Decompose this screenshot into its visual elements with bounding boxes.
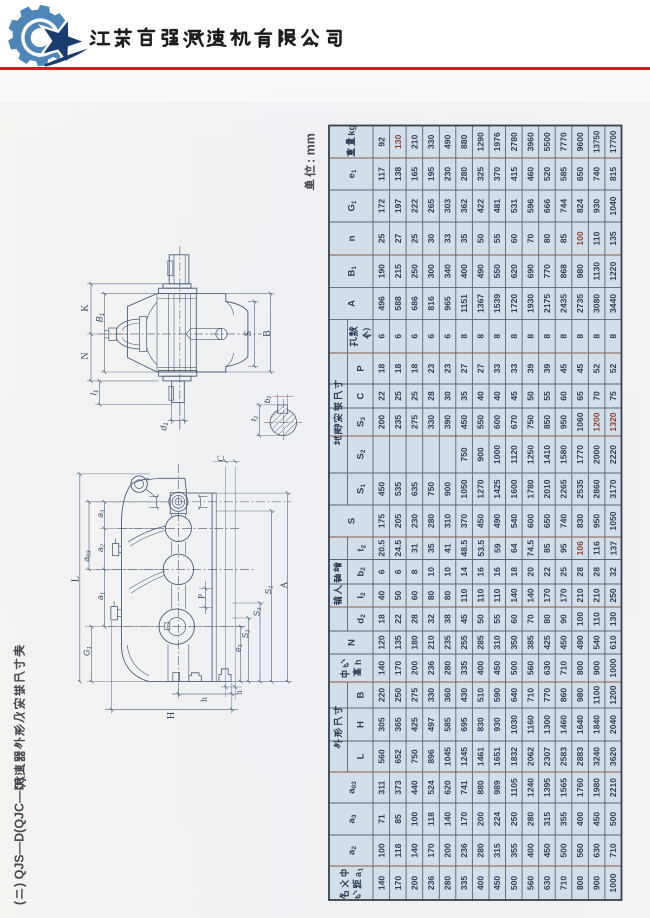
svg-text:8: 8: [476, 334, 486, 339]
svg-text:52: 52: [592, 364, 602, 374]
svg-text:8: 8: [525, 334, 535, 339]
svg-text:80: 80: [426, 591, 436, 601]
svg-text:B: B: [262, 330, 273, 337]
svg-text:18: 18: [393, 364, 403, 374]
svg-text:315: 315: [542, 812, 552, 827]
svg-text:750: 750: [409, 749, 419, 764]
svg-text:28: 28: [592, 567, 602, 577]
svg-text:140: 140: [525, 588, 535, 603]
svg-text:740: 740: [559, 514, 569, 529]
svg-text:1770: 1770: [575, 445, 585, 464]
svg-text:2735: 2735: [575, 294, 585, 313]
svg-text:430: 430: [459, 688, 469, 703]
svg-text:315: 315: [492, 843, 502, 858]
svg-text:816: 816: [426, 296, 436, 311]
svg-text:930: 930: [592, 199, 602, 214]
svg-text:2583: 2583: [559, 747, 569, 766]
svg-text:3080: 3080: [592, 294, 602, 313]
svg-text:20: 20: [525, 567, 535, 577]
svg-text:500: 500: [559, 843, 569, 858]
svg-text:118: 118: [393, 843, 403, 857]
svg-text:635: 635: [409, 482, 419, 497]
svg-text:950: 950: [592, 514, 602, 529]
svg-text:200: 200: [409, 876, 419, 891]
svg-text:355: 355: [559, 812, 569, 827]
svg-text:39: 39: [525, 364, 535, 374]
svg-text:275: 275: [409, 415, 419, 430]
svg-text:630: 630: [592, 843, 602, 858]
svg-text:100: 100: [376, 843, 386, 858]
svg-text:520: 520: [542, 167, 552, 182]
svg-text:362: 362: [459, 199, 469, 214]
svg-text:236: 236: [459, 843, 469, 858]
svg-text:235: 235: [393, 415, 403, 430]
svg-text:28: 28: [575, 567, 585, 577]
svg-text:1250: 1250: [525, 445, 535, 464]
svg-text:1050: 1050: [459, 479, 469, 498]
svg-text:1000: 1000: [608, 873, 618, 892]
svg-text:h: h: [200, 697, 210, 702]
svg-text:C: C: [217, 455, 227, 461]
svg-text:205: 205: [393, 514, 403, 529]
svg-text:n: n: [346, 235, 357, 241]
svg-text:585: 585: [559, 167, 569, 182]
svg-text:22: 22: [542, 567, 552, 577]
svg-text:40: 40: [476, 391, 486, 401]
svg-text:24.5: 24.5: [393, 540, 403, 557]
svg-text:1130: 1130: [592, 262, 602, 281]
svg-text:1651: 1651: [492, 747, 502, 766]
svg-text:130: 130: [608, 612, 618, 627]
svg-text:230: 230: [409, 514, 419, 529]
svg-text:741: 741: [459, 780, 469, 795]
svg-text:750: 750: [525, 415, 535, 430]
svg-text:40: 40: [376, 591, 386, 601]
svg-text:630: 630: [542, 661, 552, 676]
svg-text:1976: 1976: [492, 132, 502, 151]
svg-text:27: 27: [476, 364, 486, 374]
svg-text:210: 210: [409, 134, 419, 149]
svg-text:170: 170: [426, 843, 436, 858]
svg-text:2535: 2535: [575, 479, 585, 498]
svg-text:52: 52: [608, 364, 618, 374]
svg-text:80: 80: [542, 234, 552, 244]
svg-text:1930: 1930: [525, 294, 535, 313]
svg-text:3960: 3960: [525, 132, 535, 151]
svg-text:100: 100: [409, 812, 419, 827]
svg-text:80: 80: [443, 591, 453, 601]
svg-text:236: 236: [426, 661, 436, 676]
svg-text:8: 8: [509, 334, 519, 339]
svg-text:170: 170: [393, 661, 403, 676]
svg-text:5500: 5500: [542, 132, 552, 151]
svg-text:50: 50: [476, 614, 486, 624]
svg-text:950: 950: [559, 415, 569, 430]
svg-text:140: 140: [376, 876, 386, 891]
svg-text:620: 620: [509, 264, 519, 279]
svg-text:7770: 7770: [559, 132, 569, 151]
svg-text:1060: 1060: [575, 412, 585, 431]
svg-text:900: 900: [476, 447, 486, 462]
svg-text:222: 222: [409, 199, 419, 214]
svg-text:18: 18: [376, 364, 386, 374]
svg-text:23: 23: [443, 364, 453, 374]
svg-text:310: 310: [492, 635, 502, 650]
svg-text:: mm: : mm: [304, 133, 318, 163]
svg-text:30: 30: [443, 391, 453, 401]
svg-text:390: 390: [443, 415, 453, 430]
svg-text:1105: 1105: [509, 778, 519, 797]
svg-text:868: 868: [559, 264, 569, 279]
svg-text:650: 650: [542, 514, 552, 529]
svg-text:215: 215: [393, 264, 403, 279]
svg-text:770: 770: [542, 264, 552, 279]
svg-text:280: 280: [525, 812, 535, 827]
svg-text:53.5: 53.5: [476, 540, 486, 557]
svg-text:137: 137: [608, 541, 618, 556]
svg-text:70: 70: [525, 234, 535, 244]
svg-text:59: 59: [492, 543, 502, 553]
svg-text:370: 370: [492, 167, 502, 182]
svg-text:1000: 1000: [608, 658, 618, 677]
svg-text:1000: 1000: [492, 445, 502, 464]
svg-text:850: 850: [542, 415, 552, 430]
svg-text:370: 370: [459, 514, 469, 529]
svg-text:1030: 1030: [509, 715, 519, 734]
svg-text:590: 590: [492, 688, 502, 703]
svg-text:10: 10: [443, 567, 453, 577]
svg-text:652: 652: [393, 749, 403, 764]
svg-text:355: 355: [509, 843, 519, 858]
svg-text:250: 250: [409, 264, 419, 279]
svg-text:14: 14: [459, 567, 469, 577]
svg-text:135: 135: [393, 635, 403, 650]
svg-text:71: 71: [376, 814, 386, 824]
svg-text:6: 6: [443, 334, 453, 339]
svg-text:45: 45: [559, 364, 569, 374]
svg-text:70: 70: [592, 391, 602, 401]
svg-text:85: 85: [542, 543, 552, 553]
svg-text:6: 6: [426, 334, 436, 339]
svg-text:8: 8: [542, 334, 552, 339]
svg-text:60: 60: [509, 614, 519, 624]
svg-text:255: 255: [459, 635, 469, 650]
svg-text:N: N: [346, 639, 357, 646]
svg-text:303: 303: [443, 199, 453, 214]
svg-text:210: 210: [592, 588, 602, 603]
svg-text:560: 560: [525, 876, 535, 891]
svg-text:H: H: [356, 721, 367, 728]
svg-text:45: 45: [459, 614, 469, 624]
svg-text:385: 385: [525, 635, 535, 650]
svg-text:415: 415: [509, 167, 519, 182]
svg-text:2040: 2040: [608, 715, 618, 734]
svg-text:695: 695: [459, 717, 469, 732]
svg-text:490: 490: [575, 635, 585, 650]
svg-text:A: A: [346, 300, 357, 307]
svg-text:610: 610: [608, 635, 618, 650]
svg-text:1832: 1832: [509, 747, 519, 766]
svg-text:33: 33: [509, 364, 519, 374]
svg-text:45: 45: [575, 364, 585, 374]
svg-text:118: 118: [426, 812, 436, 826]
svg-text:350: 350: [509, 635, 519, 650]
svg-text:170: 170: [542, 588, 552, 603]
svg-text:510: 510: [476, 688, 486, 703]
svg-text:S: S: [243, 331, 254, 337]
svg-text:200: 200: [376, 415, 386, 430]
svg-text:305: 305: [376, 717, 386, 732]
svg-text:1040: 1040: [608, 196, 618, 215]
svg-text:670: 670: [509, 415, 519, 430]
svg-text:440: 440: [409, 780, 419, 795]
svg-text:236: 236: [426, 876, 436, 891]
svg-text:620: 620: [443, 780, 453, 795]
svg-text:1270: 1270: [476, 479, 486, 498]
svg-text:20.5: 20.5: [376, 540, 386, 557]
svg-text:60: 60: [409, 591, 419, 601]
svg-text:116: 116: [592, 541, 602, 555]
svg-text:1410: 1410: [542, 445, 552, 464]
svg-text:P: P: [356, 365, 367, 372]
svg-text:1160: 1160: [525, 715, 535, 734]
svg-text:1425: 1425: [492, 479, 502, 498]
svg-text:172: 172: [376, 199, 386, 214]
svg-text:6: 6: [393, 569, 403, 574]
svg-text:8: 8: [459, 334, 469, 339]
svg-text:1200: 1200: [608, 685, 618, 704]
svg-text:85: 85: [559, 234, 569, 244]
svg-text:3170: 3170: [608, 479, 618, 498]
svg-text:2220: 2220: [608, 445, 618, 464]
svg-text:880: 880: [476, 780, 486, 795]
svg-text:740: 740: [592, 167, 602, 182]
svg-text:1290: 1290: [476, 132, 486, 151]
svg-text:965: 965: [443, 296, 453, 311]
svg-text:B: B: [356, 691, 367, 698]
svg-text:64: 64: [509, 543, 519, 553]
svg-text:197: 197: [393, 199, 403, 214]
svg-text:310: 310: [443, 514, 453, 529]
svg-text:8: 8: [559, 334, 569, 339]
svg-text:490: 490: [476, 264, 486, 279]
svg-text:100: 100: [575, 231, 585, 246]
svg-text:100: 100: [575, 612, 585, 627]
svg-text:1760: 1760: [575, 778, 585, 797]
svg-text:kg: kg: [346, 125, 357, 136]
svg-text:710: 710: [608, 843, 618, 858]
svg-text:824: 824: [575, 199, 585, 214]
svg-text:1780: 1780: [525, 479, 535, 498]
svg-text:170: 170: [459, 812, 469, 827]
svg-text:230: 230: [443, 167, 453, 182]
svg-text:45: 45: [509, 391, 519, 401]
svg-text:35: 35: [459, 391, 469, 401]
svg-text:55: 55: [492, 614, 502, 624]
svg-text:18: 18: [509, 567, 519, 577]
svg-text:750: 750: [426, 482, 436, 497]
svg-text:60: 60: [559, 391, 569, 401]
svg-text:200: 200: [476, 812, 486, 827]
svg-text:1539: 1539: [492, 294, 502, 313]
svg-text:2265: 2265: [559, 479, 569, 498]
svg-text:1300: 1300: [542, 715, 552, 734]
svg-text:280: 280: [443, 876, 453, 891]
svg-text:3440: 3440: [608, 294, 618, 313]
svg-text:2000: 2000: [592, 445, 602, 464]
svg-text:1640: 1640: [575, 715, 585, 734]
svg-text:560: 560: [376, 749, 386, 764]
svg-text:28: 28: [409, 614, 419, 624]
svg-text:710: 710: [559, 661, 569, 676]
svg-text:200: 200: [409, 661, 419, 676]
svg-text:28: 28: [426, 391, 436, 401]
svg-text:70: 70: [525, 614, 535, 624]
svg-text:N: N: [80, 352, 91, 359]
svg-text:8: 8: [592, 334, 602, 339]
svg-text:30: 30: [426, 234, 436, 244]
svg-text:170: 170: [559, 588, 569, 603]
svg-text:1460: 1460: [559, 715, 569, 734]
svg-text:A: A: [280, 581, 290, 588]
svg-text:50: 50: [525, 391, 535, 401]
svg-text:138: 138: [393, 167, 403, 182]
svg-text:666: 666: [542, 199, 552, 214]
svg-text:80: 80: [542, 614, 552, 624]
svg-text:531: 531: [509, 199, 519, 214]
svg-text:550: 550: [476, 415, 486, 430]
svg-text:140: 140: [509, 588, 519, 603]
svg-text:540: 540: [592, 635, 602, 650]
svg-text:524: 524: [426, 780, 436, 795]
svg-text:1151: 1151: [459, 294, 469, 313]
svg-text:18: 18: [409, 364, 419, 374]
svg-text:989: 989: [492, 780, 502, 795]
svg-text:110: 110: [459, 588, 469, 602]
svg-text:900: 900: [592, 661, 602, 676]
svg-text:710: 710: [559, 876, 569, 891]
svg-text:285: 285: [476, 635, 486, 650]
svg-text:75: 75: [608, 391, 618, 401]
svg-text:373: 373: [393, 780, 403, 795]
svg-text:16: 16: [476, 567, 486, 577]
svg-text:250: 250: [608, 588, 618, 603]
svg-text:135: 135: [608, 231, 618, 246]
svg-text:117: 117: [376, 167, 386, 181]
svg-text:33: 33: [492, 364, 502, 374]
svg-text:140: 140: [443, 812, 453, 827]
svg-text:360: 360: [443, 688, 453, 703]
svg-text:275: 275: [409, 688, 419, 703]
svg-text:2062: 2062: [525, 747, 535, 766]
svg-text:55: 55: [492, 234, 502, 244]
svg-text:980: 980: [575, 688, 585, 703]
svg-text:106: 106: [575, 541, 585, 556]
svg-text:450: 450: [476, 514, 486, 529]
svg-text:1200: 1200: [592, 412, 602, 431]
svg-text:311: 311: [376, 780, 386, 794]
svg-text:195: 195: [426, 167, 436, 182]
svg-text:22: 22: [393, 614, 403, 624]
svg-text:425: 425: [409, 717, 419, 732]
svg-text:1240: 1240: [525, 778, 535, 797]
svg-text:1: 1: [358, 868, 365, 872]
svg-text:2860: 2860: [592, 479, 602, 498]
svg-text:280: 280: [459, 167, 469, 182]
svg-text:210: 210: [575, 588, 585, 603]
svg-text:235: 235: [443, 635, 453, 650]
svg-text:3620: 3620: [608, 747, 618, 766]
svg-text:686: 686: [409, 296, 419, 311]
svg-text:588: 588: [393, 296, 403, 311]
svg-text:1580: 1580: [559, 445, 569, 464]
svg-text:770: 770: [542, 688, 552, 703]
svg-text:1395: 1395: [542, 778, 552, 797]
svg-text:38: 38: [443, 614, 453, 624]
svg-text:1220: 1220: [608, 261, 618, 280]
svg-text:2307: 2307: [542, 747, 552, 766]
svg-text:1100: 1100: [592, 685, 602, 704]
svg-text:630: 630: [542, 876, 552, 891]
svg-text:120: 120: [376, 635, 386, 650]
svg-text:9600: 9600: [575, 132, 585, 151]
svg-text:48.5: 48.5: [459, 540, 469, 557]
svg-text:50: 50: [476, 234, 486, 244]
svg-text:h: h: [353, 660, 363, 666]
svg-text:90: 90: [559, 614, 569, 624]
svg-text:2175: 2175: [542, 294, 552, 313]
svg-text:18: 18: [376, 614, 386, 624]
svg-text:330: 330: [426, 688, 436, 703]
svg-text:1720: 1720: [509, 294, 519, 313]
svg-text:800: 800: [575, 661, 585, 676]
svg-text:540: 540: [509, 514, 519, 529]
svg-text:1320: 1320: [608, 412, 618, 431]
svg-text:690: 690: [525, 264, 535, 279]
svg-text:490: 490: [443, 134, 453, 149]
svg-text:65: 65: [575, 391, 585, 401]
svg-text:400: 400: [476, 661, 486, 676]
svg-text:220: 220: [376, 688, 386, 703]
svg-text:550: 550: [492, 264, 502, 279]
svg-text:365: 365: [393, 717, 403, 732]
svg-text:6: 6: [376, 334, 386, 339]
svg-text:450: 450: [542, 843, 552, 858]
svg-text:40: 40: [492, 391, 502, 401]
svg-text:330: 330: [426, 415, 436, 430]
svg-text:600: 600: [525, 514, 535, 529]
svg-text:8: 8: [409, 569, 419, 574]
svg-text:92: 92: [376, 137, 386, 147]
svg-text:16: 16: [492, 567, 502, 577]
svg-text:500: 500: [608, 812, 618, 827]
svg-text:497: 497: [426, 717, 436, 732]
svg-text:422: 422: [476, 199, 486, 214]
svg-text:25: 25: [376, 234, 386, 244]
svg-text:980: 980: [575, 264, 585, 279]
svg-text:35: 35: [426, 543, 436, 553]
svg-text:170: 170: [393, 876, 403, 891]
svg-text:450: 450: [492, 876, 502, 891]
svg-text:S: S: [346, 518, 357, 524]
svg-text:450: 450: [459, 415, 469, 430]
svg-text:830: 830: [476, 717, 486, 732]
svg-text:165: 165: [409, 167, 419, 182]
svg-text:560: 560: [575, 843, 585, 858]
svg-text:930: 930: [492, 717, 502, 732]
svg-text:K: K: [80, 304, 91, 312]
svg-text:1840: 1840: [592, 715, 602, 734]
